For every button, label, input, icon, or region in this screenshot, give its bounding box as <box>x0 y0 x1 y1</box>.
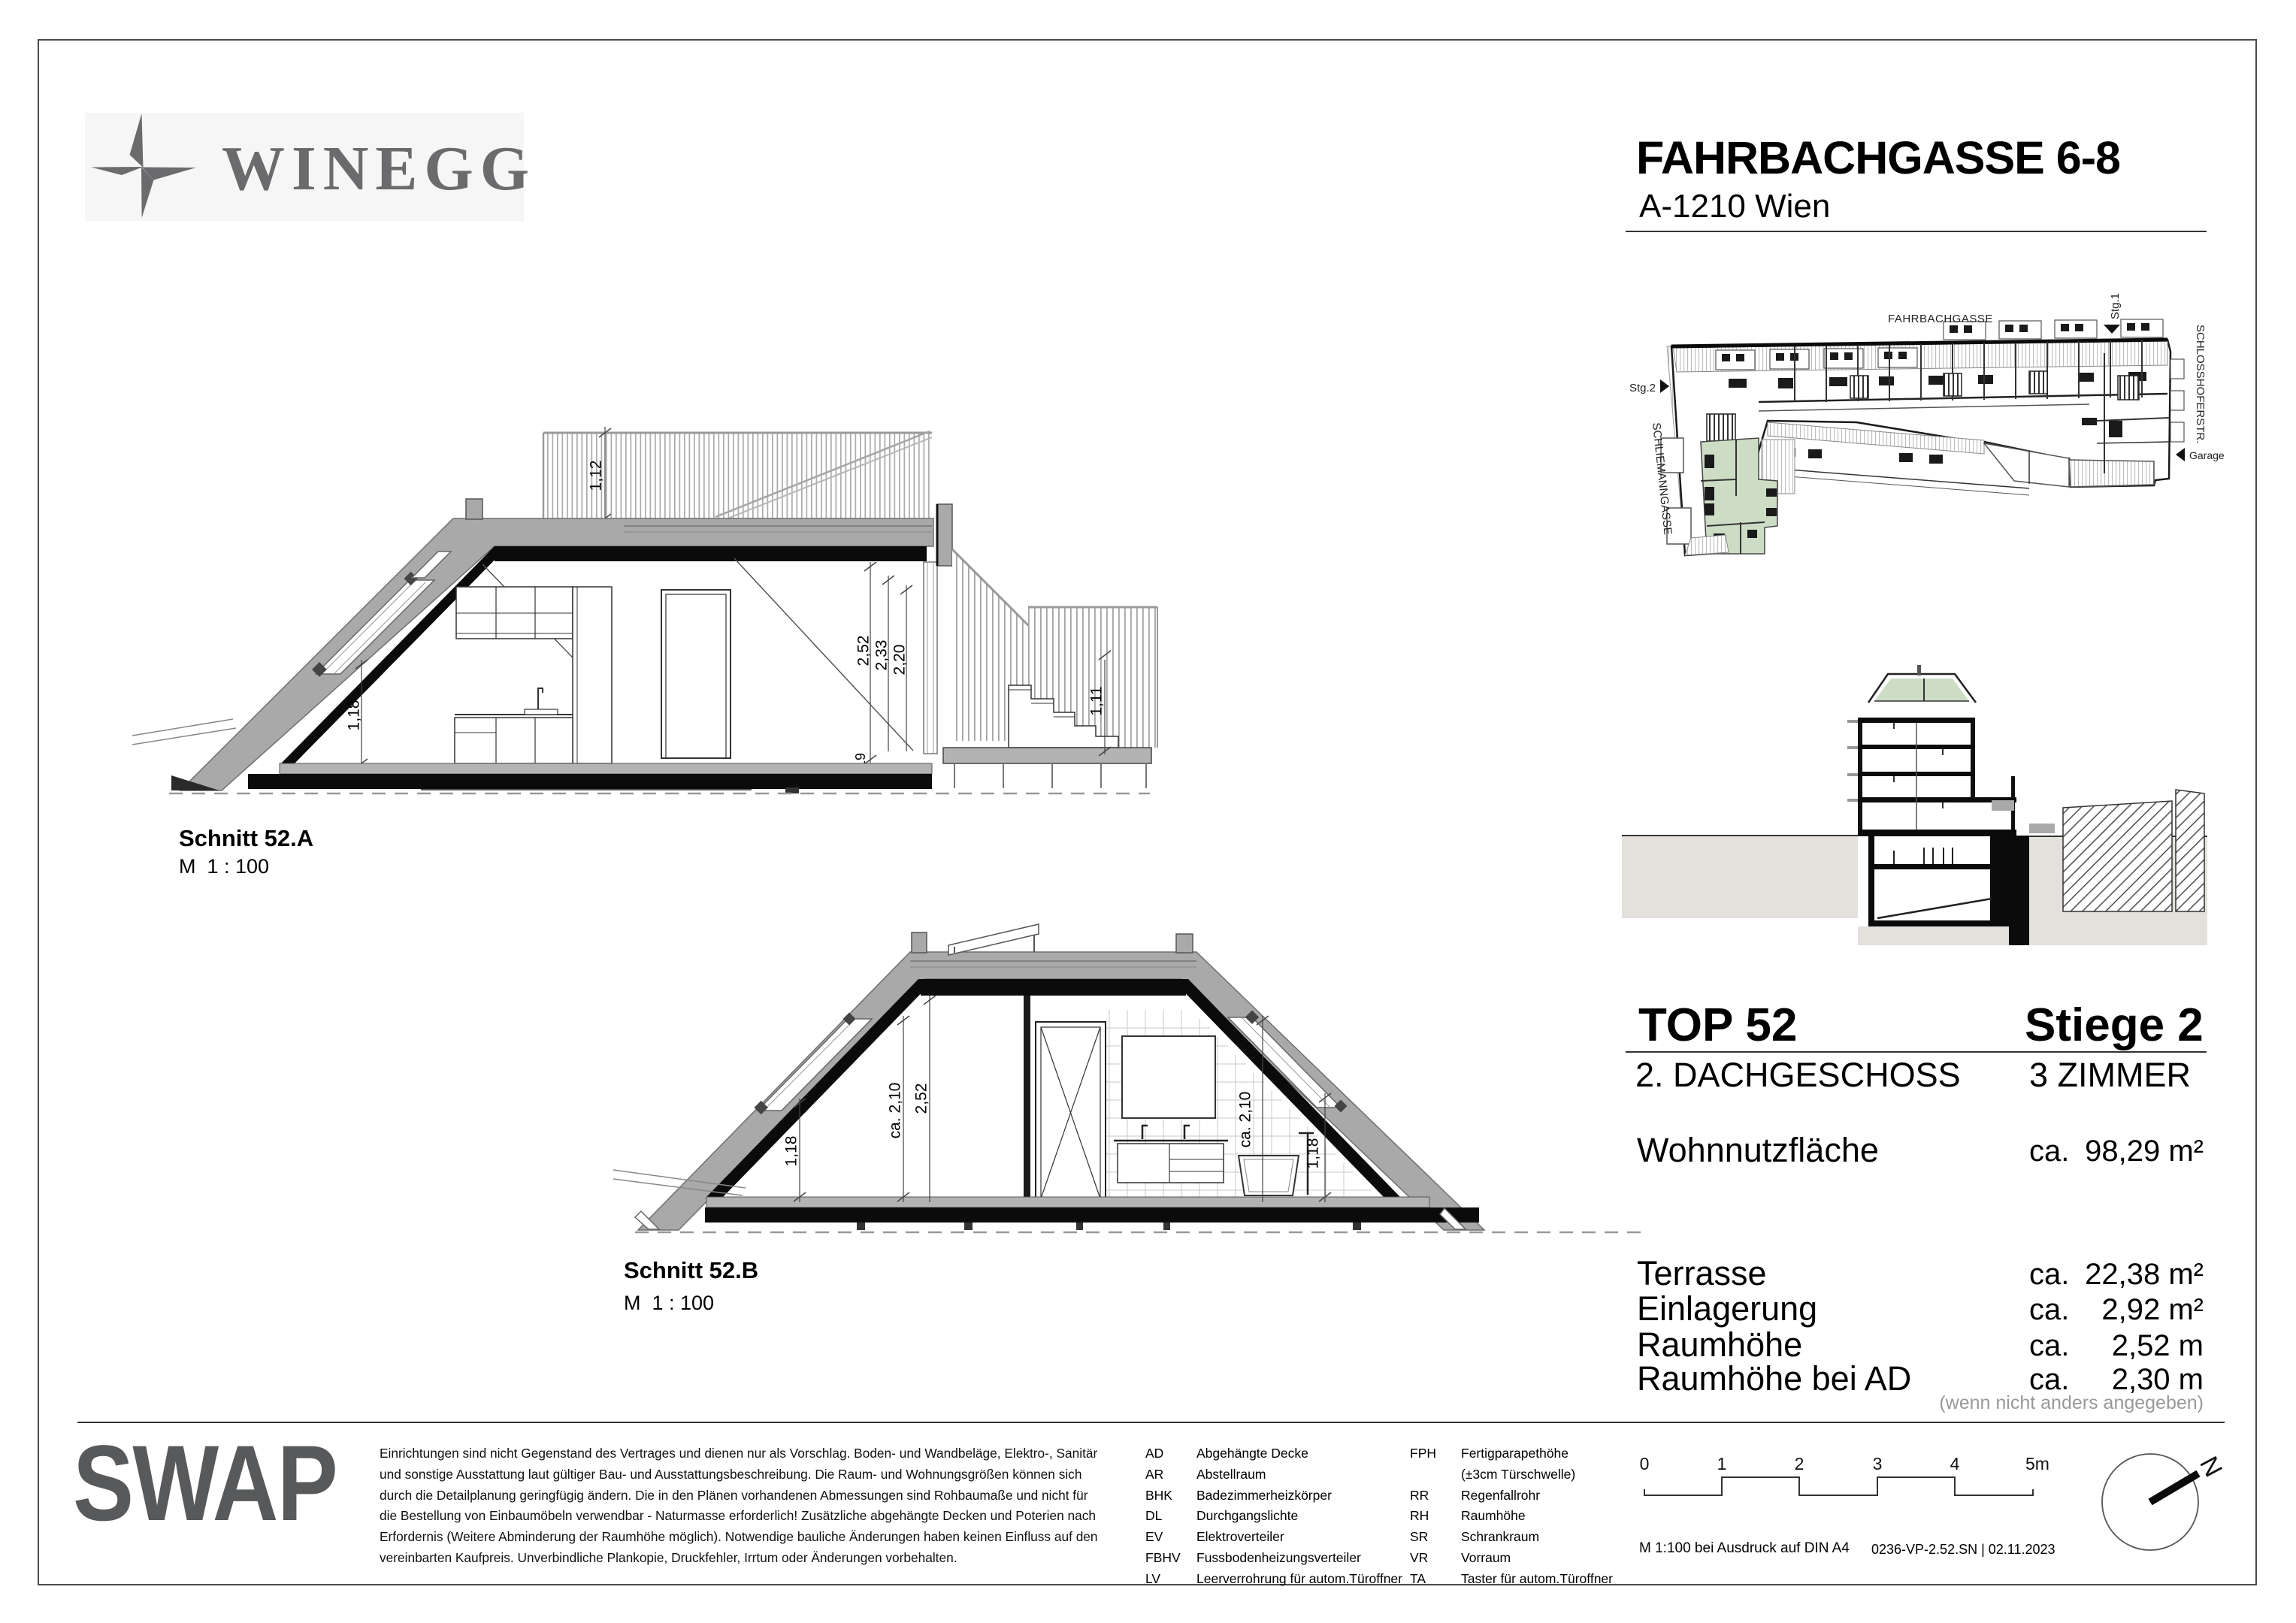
svg-text:1: 1 <box>1717 1454 1727 1473</box>
svg-text:2,52: 2,52 <box>855 636 873 666</box>
svg-text:1,11: 1,11 <box>1088 686 1106 715</box>
svg-text:2,33: 2,33 <box>873 640 891 671</box>
svg-text:Stg.1: Stg.1 <box>2109 293 2122 319</box>
svg-text:0: 0 <box>1640 1454 1650 1473</box>
svg-text:ca. 2,10: ca. 2,10 <box>887 1083 904 1139</box>
svg-text:Garage: Garage <box>2189 449 2225 461</box>
svg-text:2,52: 2,52 <box>913 1084 930 1114</box>
svg-text:3: 3 <box>1873 1454 1883 1473</box>
svg-text:1,18: 1,18 <box>783 1136 800 1167</box>
svg-text:Stg.2: Stg.2 <box>1629 382 1656 394</box>
svg-text:4: 4 <box>1950 1454 1960 1473</box>
svg-text:1,18: 1,18 <box>1305 1138 1322 1169</box>
svg-text:1,12: 1,12 <box>588 461 605 491</box>
svg-text:1,18: 1,18 <box>346 700 363 731</box>
svg-text:5m: 5m <box>2025 1454 2049 1473</box>
svg-text:ca. 2,10: ca. 2,10 <box>1237 1092 1254 1148</box>
svg-text:2: 2 <box>1795 1454 1804 1473</box>
svg-text:SCHLOSSHOFERSTR.: SCHLOSSHOFERSTR. <box>2194 325 2207 443</box>
svg-text:FAHRBACHGASSE: FAHRBACHGASSE <box>1888 313 1993 325</box>
svg-text:2,20: 2,20 <box>891 645 909 675</box>
